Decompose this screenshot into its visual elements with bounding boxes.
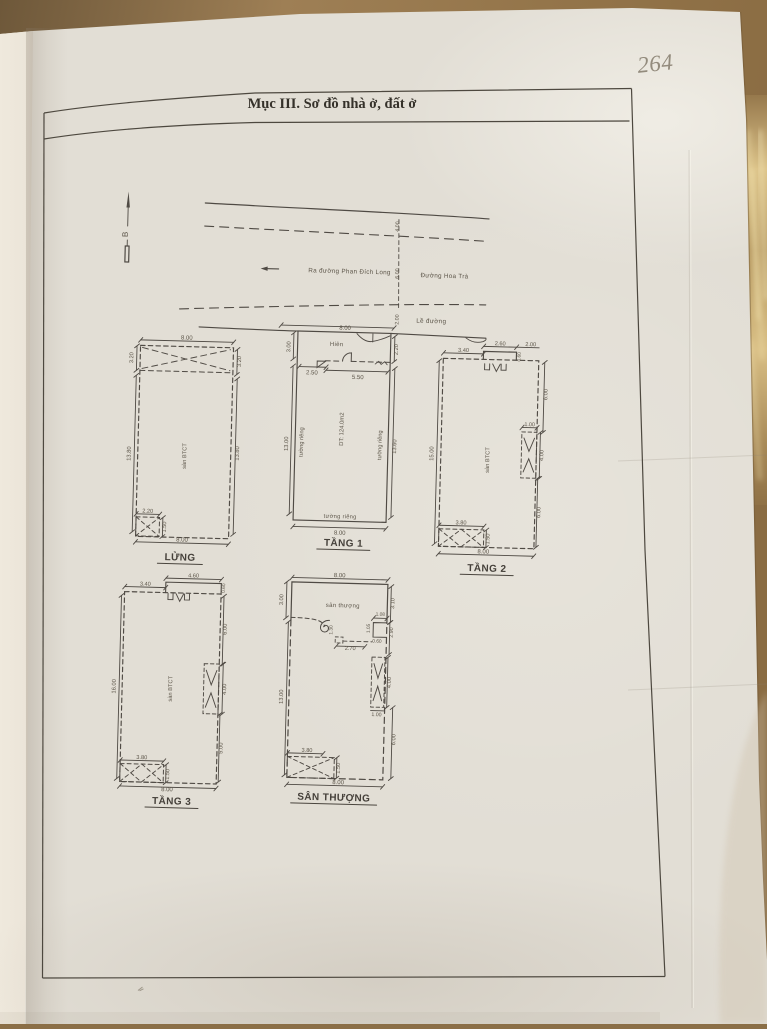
svg-text:TẦNG 3: TẦNG 3 (152, 794, 191, 808)
svg-text:16.00: 16.00 (112, 679, 118, 694)
svg-text:8.00: 8.00 (334, 573, 346, 579)
svg-text:2.00: 2.00 (394, 314, 400, 325)
svg-text:4.00: 4.00 (395, 221, 401, 232)
svg-text:0.60: 0.60 (221, 583, 227, 593)
svg-text:3.00: 3.00 (279, 594, 285, 605)
svg-text:8.00: 8.00 (181, 335, 193, 341)
svg-text:13.80: 13.80 (235, 446, 241, 461)
svg-text:6.00: 6.00 (543, 389, 549, 400)
svg-text:15.00: 15.00 (429, 446, 435, 461)
svg-text:sân thượng: sân thượng (326, 603, 360, 610)
svg-text:1.50: 1.50 (162, 522, 168, 533)
svg-text:5.50: 5.50 (352, 375, 364, 381)
svg-text:2.90: 2.90 (389, 627, 395, 638)
svg-text:6.00: 6.00 (536, 507, 542, 518)
svg-text:2.70: 2.70 (345, 646, 356, 652)
svg-text:DT: 124.0m2: DT: 124.0m2 (339, 412, 346, 446)
svg-text:2.50: 2.50 (306, 370, 318, 376)
svg-text:1.50: 1.50 (485, 534, 491, 545)
svg-text:Đường Hoa Trà: Đường Hoa Trà (420, 272, 468, 280)
svg-text:4.60: 4.60 (188, 573, 199, 579)
svg-text:0.60: 0.60 (517, 352, 523, 362)
svg-text:6.00: 6.00 (395, 268, 401, 279)
svg-text:1.08: 1.08 (376, 612, 386, 618)
svg-text:tường riêng: tường riêng (324, 514, 357, 521)
svg-text:8.00: 8.00 (161, 787, 173, 793)
svg-text:6.00: 6.00 (391, 734, 397, 745)
svg-text:13.00: 13.00 (284, 436, 290, 451)
svg-text:13.60: 13.60 (392, 439, 398, 454)
svg-text:3.20: 3.20 (129, 352, 135, 363)
svg-text:0.60: 0.60 (372, 639, 382, 645)
svg-text:3.10: 3.10 (390, 598, 396, 609)
svg-text:3.00: 3.00 (286, 341, 292, 352)
svg-text:1.50: 1.50 (336, 763, 342, 774)
svg-text:tường riêng: tường riêng (299, 427, 306, 457)
svg-text:2.20: 2.20 (142, 508, 153, 514)
svg-text:3.40: 3.40 (140, 581, 151, 587)
svg-text:sàn BTCT: sàn BTCT (168, 675, 175, 701)
svg-text:TẦNG 2: TẦNG 2 (467, 561, 506, 575)
svg-text:4.00: 4.00 (222, 683, 228, 694)
svg-text:8.00: 8.00 (339, 326, 351, 332)
svg-text:Hiên: Hiên (330, 342, 344, 348)
svg-text:13.80: 13.80 (127, 446, 133, 461)
svg-text:tường riêng: tường riêng (377, 430, 384, 460)
svg-text:8.00: 8.00 (334, 531, 346, 537)
svg-text:1.30: 1.30 (328, 625, 334, 635)
svg-text:8.00: 8.00 (477, 549, 489, 555)
svg-text:4.00: 4.00 (387, 677, 393, 688)
svg-text:8.00: 8.00 (332, 780, 344, 786)
svg-text:2.20: 2.20 (394, 344, 400, 355)
svg-text:2.00: 2.00 (525, 342, 536, 348)
svg-text:sàn BTCT: sàn BTCT (182, 443, 189, 469)
svg-text:Mục III. Sơ đồ nhà ở, đất ở: Mục III. Sơ đồ nhà ở, đất ở (248, 96, 417, 112)
svg-text:3.80: 3.80 (455, 520, 466, 526)
svg-text:3.40: 3.40 (458, 348, 469, 354)
svg-text:6.00: 6.00 (223, 623, 229, 634)
svg-text:8.00: 8.00 (176, 537, 188, 543)
svg-text:2.60: 2.60 (495, 341, 506, 347)
svg-text:1.50: 1.50 (165, 769, 171, 780)
svg-text:sàn BTCT: sàn BTCT (485, 447, 492, 473)
svg-text:3.80: 3.80 (301, 748, 312, 754)
svg-text:1.00: 1.00 (524, 422, 535, 428)
svg-text:TẦNG 1: TẦNG 1 (324, 536, 363, 550)
svg-text:1.05: 1.05 (366, 623, 372, 633)
svg-text:B: B (121, 232, 130, 238)
svg-text:1.00: 1.00 (371, 712, 381, 718)
svg-text:3.20: 3.20 (237, 356, 243, 367)
svg-text:3.80: 3.80 (136, 755, 147, 761)
svg-text:4.00: 4.00 (539, 450, 545, 461)
svg-text:264: 264 (636, 49, 674, 78)
svg-text:5.00: 5.00 (218, 742, 224, 753)
svg-text:LỬNG: LỬNG (164, 550, 195, 564)
svg-text:13.00: 13.00 (279, 689, 285, 704)
